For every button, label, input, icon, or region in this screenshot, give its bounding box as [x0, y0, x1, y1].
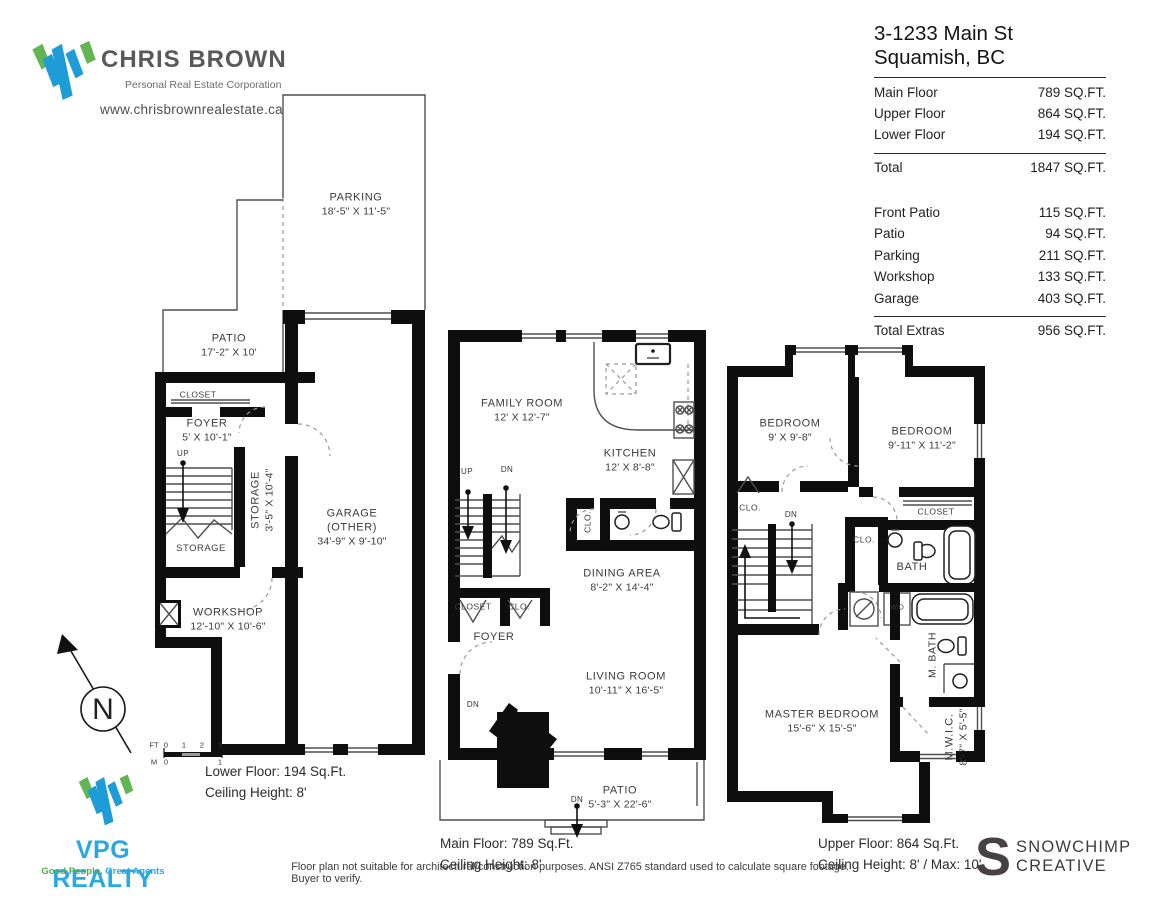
washer-dryer-label: W/D — [890, 605, 904, 614]
tagline-great: Great Agents — [103, 866, 165, 877]
room-name: PATIO — [201, 333, 257, 347]
floor-plan-drawing — [0, 0, 1165, 900]
room-name: WORKSHOP — [190, 607, 265, 621]
snowchimp-logo-initial: S — [975, 830, 1011, 884]
caption-line: Main Floor: 789 Sq.Ft. — [440, 834, 574, 855]
scalebar-tick: 2 — [200, 741, 204, 750]
scalebar-tick: 3 — [218, 741, 222, 750]
caption-line: Ceiling Height: 8' — [205, 783, 346, 804]
room-name: BEDROOM — [759, 418, 820, 432]
scalebar-tick: 1 — [218, 758, 222, 767]
stair-label-dn: DN — [785, 510, 797, 520]
room-name: KITCHEN — [604, 448, 656, 462]
room-dims: 8'-7" X 5'-5" — [957, 708, 970, 765]
room-name: LIVING ROOM — [586, 671, 666, 685]
room-name2: (OTHER) — [317, 521, 386, 535]
room-name: FOYER — [182, 418, 232, 432]
room-label-living-room: LIVING ROOM10'-11" X 16'-5" — [586, 671, 666, 698]
room-dims: 5' X 10'-1" — [182, 431, 232, 444]
room-label-storage-tall: STORAGE3'-5" X 10'-4" — [250, 468, 277, 531]
room-label-patio-main: PATIO5'-3" X 22'-6" — [588, 785, 651, 812]
room-label-storage: STORAGE — [176, 543, 226, 555]
scalebar-m-label: M — [151, 758, 157, 767]
room-name: FAMILY ROOM — [481, 398, 563, 412]
room-dims: 17'-2" X 10' — [201, 346, 257, 359]
room-label-closet-upper: CLOSET — [917, 507, 954, 518]
room-name: MASTER BEDROOM — [765, 709, 879, 723]
room-label-bedroom-2: BEDROOM9'-11" X 11'-2" — [888, 426, 956, 453]
floorplan-sheet: CHRIS BROWN Personal Real Estate Corpora… — [0, 0, 1165, 900]
room-label-master-bedroom: MASTER BEDROOM15'-6" X 15'-5" — [765, 709, 879, 736]
room-dims: 9'-11" X 11'-2" — [888, 439, 956, 452]
snowchimp-name-line2: CREATIVE — [1016, 857, 1107, 876]
room-label-family-room: FAMILY ROOM12' X 12'-7" — [481, 398, 563, 425]
room-label-garage: GARAGE(OTHER)34'-9" X 9'-10" — [317, 508, 386, 549]
vpg-realty-logo-mark — [75, 770, 137, 836]
room-dims: 34'-9" X 9'-10" — [317, 535, 386, 548]
room-dims: 12' X 12'-7" — [481, 411, 563, 424]
room-name: GARAGE — [317, 508, 386, 522]
room-name: PARKING — [322, 192, 391, 206]
room-dims: 10'-11" X 16'-5" — [586, 684, 666, 697]
brokerage-name: VPG REALTY — [32, 836, 174, 894]
room-label-clo-main: CLO. — [508, 602, 530, 613]
room-name: STORAGE — [250, 468, 264, 531]
scalebar-tick: 1 — [182, 741, 186, 750]
room-label-master-bath: M. BATH — [926, 632, 939, 678]
scalebar-tick: 0 — [164, 741, 168, 750]
room-dims: 3'-5" X 10'-4" — [263, 468, 276, 531]
disclaimer-text: Floor plan not suitable for architectura… — [291, 861, 874, 885]
room-label-dining-area: DINING AREA8'-2" X 14'-4" — [583, 568, 661, 595]
room-name: BEDROOM — [888, 426, 956, 440]
room-dims: 18'-5" X 11'-5" — [322, 205, 391, 218]
room-label-workshop: WORKSHOP12'-10" X 10'-6" — [190, 607, 265, 634]
main-floor-plan — [440, 330, 706, 838]
stair-label-up: UP — [461, 467, 473, 477]
caption-line: Upper Floor: 864 Sq.Ft. — [818, 834, 981, 855]
stair-label-up: UP — [177, 449, 189, 459]
room-dims: 8'-2" X 14'-4" — [583, 581, 661, 594]
north-label: N — [92, 693, 114, 727]
room-dims: 5'-3" X 22'-6" — [588, 798, 651, 811]
room-label-clo-upper-1: CLO. — [739, 503, 761, 514]
room-label-kitchen: KITCHEN12' X 8'-8" — [604, 448, 656, 475]
room-name: M.W.I.C. — [944, 708, 958, 765]
room-label-clo-rotated: CLO. — [583, 511, 594, 533]
room-label-patio-lower: PATIO17'-2" X 10' — [201, 333, 257, 360]
caption-line: Lower Floor: 194 Sq.Ft. — [205, 762, 346, 783]
snowchimp-name-line1: SNOWCHIMP — [1016, 838, 1131, 857]
room-label-bedroom-1: BEDROOM9' X 9'-8" — [759, 418, 820, 445]
lower-floor-caption: Lower Floor: 194 Sq.Ft.Ceiling Height: 8… — [205, 762, 346, 804]
room-label-mwic: M.W.I.C.8'-7" X 5'-5" — [944, 708, 971, 765]
room-label-closet-main: CLOSET — [454, 602, 491, 613]
scalebar-ft-label: FT — [149, 741, 158, 750]
stair-label-dn: DN — [501, 465, 513, 475]
stair-label-dn: DN — [571, 795, 583, 805]
room-dims: 9' X 9'-8" — [759, 431, 820, 444]
room-dims: 12' X 8'-8" — [604, 461, 656, 474]
room-name: DINING AREA — [583, 568, 661, 582]
room-label-foyer-lower: FOYER5' X 10'-1" — [182, 418, 232, 445]
room-name: PATIO — [588, 785, 651, 799]
scalebar-tick: 0 — [164, 758, 168, 767]
brokerage-tagline: Good People, Great Agents — [32, 866, 174, 877]
room-dims: 15'-6" X 15'-5" — [765, 722, 879, 735]
room-label-clo-upper-2: CLO. — [853, 535, 875, 546]
room-label-closet-lower: CLOSET — [179, 390, 216, 401]
stair-label-dn: DN — [467, 700, 479, 710]
room-label-foyer-main: FOYER — [474, 631, 515, 645]
room-dims: 12'-10" X 10'-6" — [190, 620, 265, 633]
room-label-bath: BATH — [897, 561, 928, 575]
room-label-parking: PARKING18'-5" X 11'-5" — [322, 192, 391, 219]
tagline-good: Good People, — [41, 866, 102, 877]
